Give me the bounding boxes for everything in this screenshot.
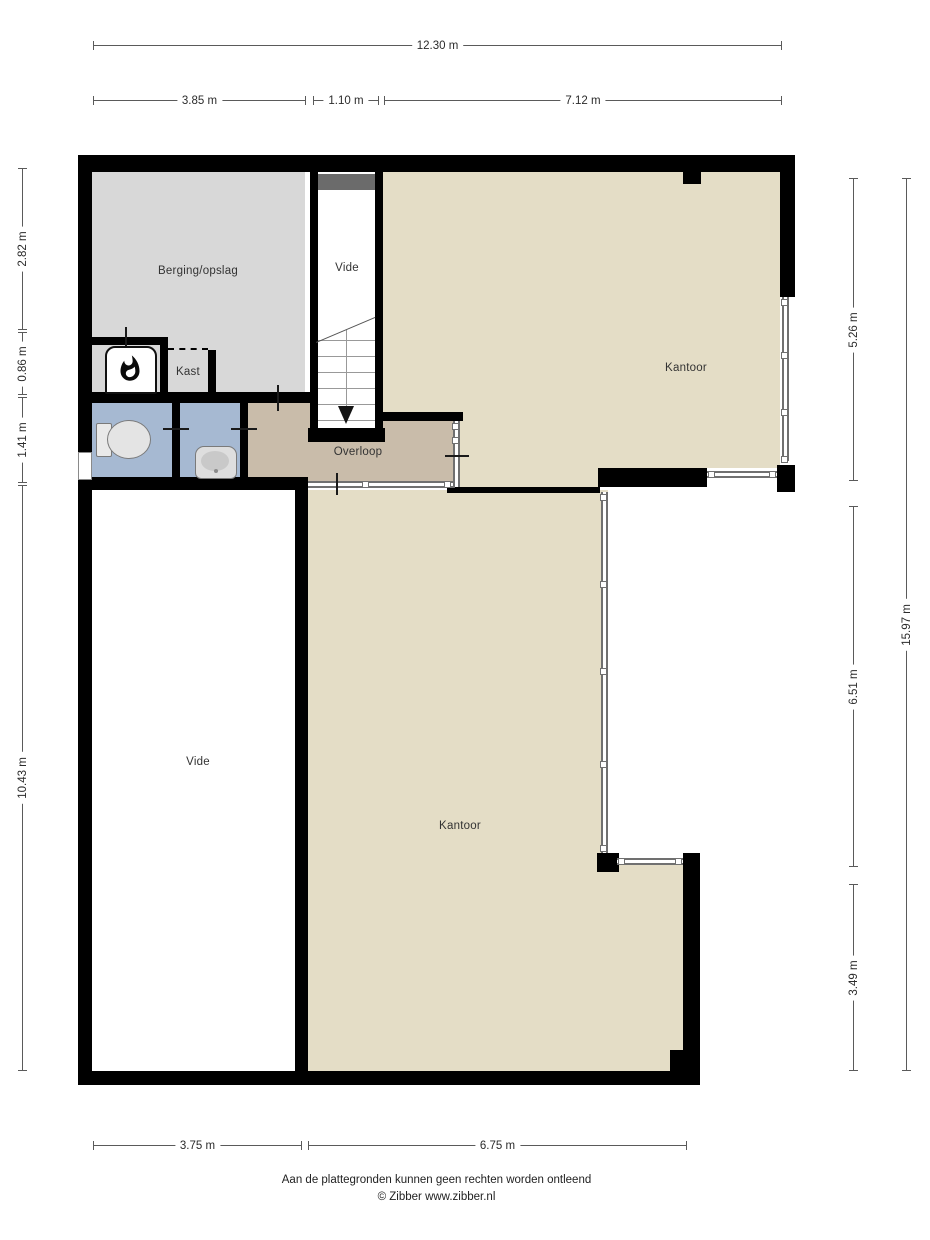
- door-marker-berging: [277, 385, 279, 411]
- wall-kantoor-top-bottom: [598, 468, 707, 487]
- mullion: [675, 858, 682, 865]
- dim-label: 6.75 m: [475, 1140, 520, 1152]
- stair-head-block: [318, 174, 375, 190]
- room-label-vide-top: Vide: [335, 262, 359, 274]
- room-label-vide-bottom: Vide: [186, 756, 210, 768]
- dim-label: 7.12 m: [560, 95, 605, 107]
- dim-label: 3.49 m: [848, 955, 860, 1000]
- dim-right-seg-2: 6.51 m: [853, 506, 854, 867]
- dim-label: 0.86 m: [17, 341, 29, 386]
- room-label-berging: Berging/opslag: [158, 265, 238, 277]
- dim-right-total: 15.97 m: [906, 178, 907, 1071]
- wall-top: [78, 155, 795, 172]
- wall-right-upper: [780, 155, 795, 297]
- floor-kantoor-top-strip: [455, 468, 598, 487]
- room-label-kantoor-bottom: Kantoor: [439, 820, 481, 832]
- mullion: [452, 423, 459, 430]
- dim-label: 3.75 m: [175, 1140, 220, 1152]
- stair-center-line: [346, 330, 347, 410]
- door-marker-toilet-right: [231, 428, 257, 430]
- stair-direction-arrow-icon: [338, 406, 354, 424]
- partition-overloop-right: [453, 421, 460, 487]
- dim-label: 15.97 m: [901, 599, 913, 651]
- dim-top-total-label: 12.30 m: [412, 40, 464, 52]
- mullion: [600, 761, 607, 768]
- wall-bottom-right-notch: [670, 1050, 685, 1071]
- wall-mid-column: [597, 853, 619, 872]
- wall-bottom: [78, 1071, 700, 1085]
- window-bottom-right: [617, 858, 683, 865]
- mullion: [444, 481, 451, 488]
- dim-left-seg-3: 1.41 m: [22, 397, 23, 483]
- floor-kantoor-bottom-ext: [608, 865, 685, 1071]
- floorplan-canvas: Berging/opslag Vide Kast Overloop Kantoo…: [0, 0, 930, 1240]
- wall-stair-bottom: [308, 428, 385, 442]
- door-marker-overloop-bottom: [336, 473, 338, 495]
- mullion: [600, 845, 607, 852]
- floor-patch-office: [383, 398, 453, 412]
- dim-bottom-seg-2: 6.75 m: [308, 1145, 687, 1146]
- dim-label: 1.41 m: [17, 417, 29, 462]
- wall-right-column: [777, 465, 795, 492]
- dim-left-seg-1: 2.82 m: [22, 168, 23, 330]
- dim-top-total: 12.30 m: [93, 45, 782, 46]
- wall-stair-right: [375, 172, 383, 430]
- mullion: [600, 581, 607, 588]
- wall-cv-top: [92, 337, 168, 345]
- dim-right-seg-3: 3.49 m: [853, 884, 854, 1071]
- mullion: [362, 481, 369, 488]
- dim-left-seg-2: 0.86 m: [22, 332, 23, 395]
- dim-top-seg-2: 1.10 m: [313, 100, 379, 101]
- mullion: [781, 299, 788, 306]
- wall-top-notch: [683, 172, 701, 184]
- room-label-kantoor-top: Kantoor: [665, 362, 707, 374]
- door-marker-toilet-left: [163, 428, 189, 430]
- wall-vide-divider: [295, 477, 308, 1085]
- mullion: [618, 858, 625, 865]
- mullion: [781, 409, 788, 416]
- dim-label: 1.10 m: [323, 95, 368, 107]
- wall-toilet-divider: [172, 403, 180, 477]
- footer-copyright: © Zibber www.zibber.nl: [78, 1191, 795, 1203]
- wall-left-lower: [78, 480, 92, 1085]
- dim-top-seg-3: 7.12 m: [384, 100, 782, 101]
- dim-left-seg-4: 10.43 m: [22, 485, 23, 1071]
- wall-overloop-top: [383, 412, 463, 421]
- dim-label: 6.51 m: [848, 664, 860, 709]
- toilet-bowl-icon: [107, 420, 151, 459]
- door-marker-overloop-right: [445, 455, 469, 457]
- mullion: [452, 437, 459, 444]
- wall-kast-right: [208, 350, 216, 396]
- dim-bottom-seg-1: 3.75 m: [93, 1145, 302, 1146]
- floor-vide-bottom: [92, 490, 295, 1071]
- dim-right-seg-1: 5.26 m: [853, 178, 854, 481]
- mullion: [708, 471, 715, 478]
- wall-toilet-right: [240, 403, 248, 477]
- footer-disclaimer: Aan de plattegronden kunnen geen rechten…: [78, 1174, 795, 1186]
- mullion: [769, 471, 776, 478]
- window-right-facade: [782, 297, 789, 461]
- wall-right-lower: [683, 853, 700, 1085]
- dim-label: 10.43 m: [17, 752, 29, 804]
- wall-kast-dashed: [168, 348, 208, 350]
- sink-icon: [195, 446, 237, 479]
- window-left-wall: [78, 452, 92, 480]
- mullion: [600, 494, 607, 501]
- partition-overloop-bottom: [308, 481, 455, 488]
- wall-kantoor-divider-thin: [447, 487, 600, 493]
- dim-top-seg-1: 3.85 m: [93, 100, 306, 101]
- wall-cv-right: [160, 337, 168, 397]
- boiler-icon: [105, 346, 157, 394]
- floor-kantoor-bottom: [308, 490, 608, 1071]
- dim-label: 3.85 m: [177, 95, 222, 107]
- mullion: [781, 456, 788, 463]
- dim-label: 2.82 m: [17, 226, 29, 271]
- window-top-right: [707, 471, 777, 478]
- mullion: [781, 352, 788, 359]
- room-label-overloop: Overloop: [334, 446, 383, 458]
- room-label-kast: Kast: [176, 366, 200, 378]
- mullion: [600, 668, 607, 675]
- dim-label: 5.26 m: [848, 307, 860, 352]
- wall-left-upper: [78, 155, 92, 452]
